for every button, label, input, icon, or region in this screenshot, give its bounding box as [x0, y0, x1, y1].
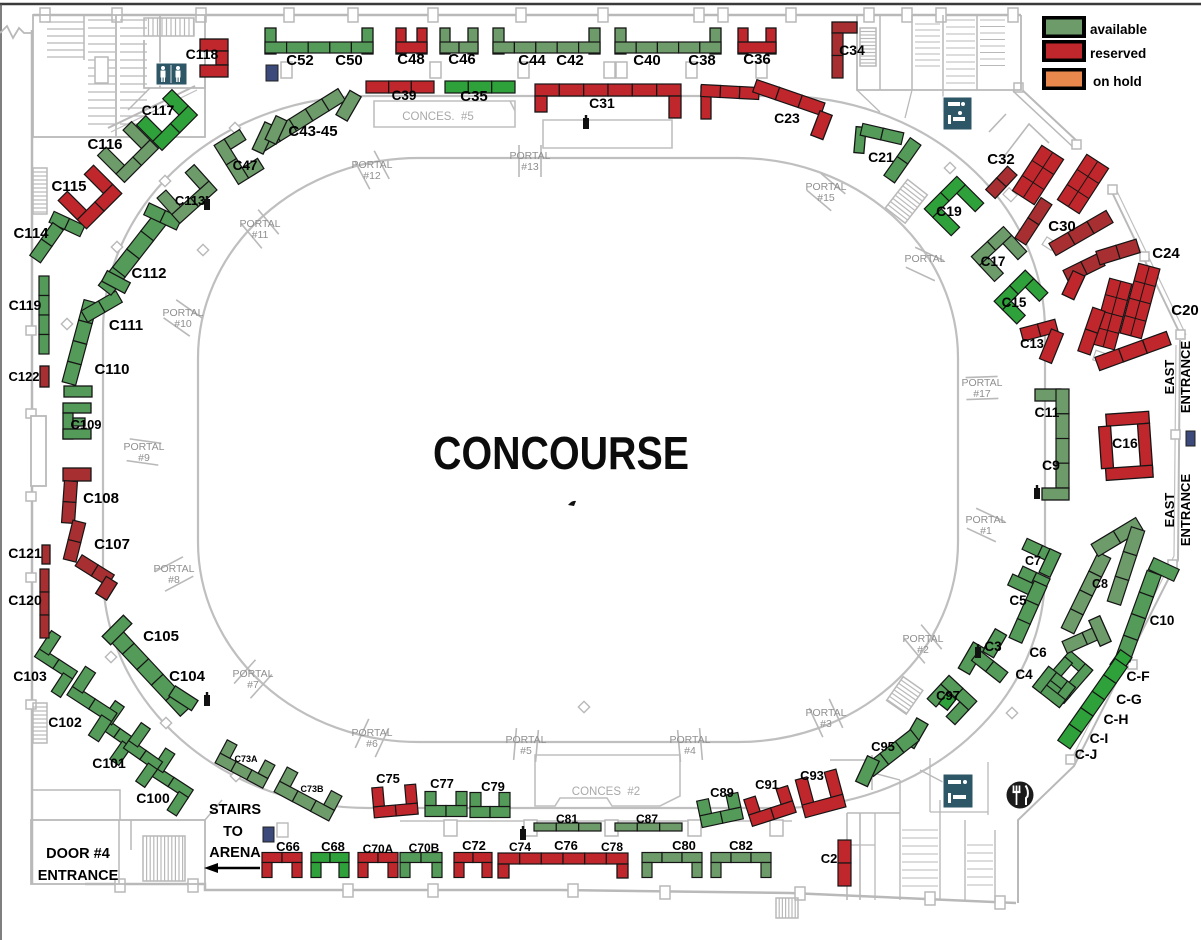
svg-text:C31: C31 [589, 95, 615, 111]
svg-text:C79: C79 [481, 779, 505, 794]
svg-text:C117: C117 [142, 102, 175, 118]
svg-text:C110: C110 [94, 361, 129, 378]
svg-text:C93: C93 [800, 768, 824, 783]
svg-text:C73A: C73A [234, 754, 258, 764]
svg-text:CONCES #2: CONCES #2 [572, 786, 640, 798]
svg-text:C121: C121 [8, 545, 42, 561]
svg-text:C103: C103 [13, 668, 47, 684]
svg-text:C104: C104 [169, 668, 206, 685]
svg-text:C10: C10 [1150, 613, 1175, 628]
svg-text:C120: C120 [8, 592, 42, 608]
svg-text:CONCES. #5: CONCES. #5 [402, 111, 474, 123]
svg-text:C73B: C73B [300, 784, 324, 794]
svg-text:C30: C30 [1048, 218, 1076, 235]
svg-text:#2: #2 [917, 644, 929, 656]
svg-text:#1: #1 [980, 525, 992, 537]
svg-text:C75: C75 [376, 771, 400, 786]
svg-text:ARENA: ARENA [209, 845, 261, 861]
svg-text:C36: C36 [743, 51, 771, 68]
svg-text:PORTAL: PORTAL [904, 253, 945, 265]
svg-text:TO: TO [223, 824, 243, 840]
svg-text:ENTRANCE: ENTRANCE [1178, 474, 1193, 547]
svg-text:C24: C24 [1152, 245, 1180, 262]
svg-text:C8: C8 [1092, 577, 1108, 591]
svg-text:C17: C17 [981, 254, 1006, 269]
svg-text:#12: #12 [363, 170, 381, 182]
svg-text:#17: #17 [973, 388, 991, 400]
svg-text:C102: C102 [48, 714, 82, 730]
svg-text:C74: C74 [509, 840, 531, 854]
svg-text:C100: C100 [136, 790, 170, 806]
svg-text:reserved: reserved [1090, 46, 1146, 61]
svg-text:C80: C80 [672, 838, 696, 853]
svg-text:ENTRANCE: ENTRANCE [38, 868, 119, 884]
svg-text:C-G: C-G [1116, 691, 1142, 707]
svg-text:C66: C66 [276, 839, 300, 854]
svg-text:C47: C47 [233, 158, 258, 173]
svg-text:C44: C44 [518, 52, 546, 69]
svg-text:C3: C3 [984, 639, 1002, 654]
svg-text:#15: #15 [817, 192, 835, 204]
svg-text:STAIRS: STAIRS [209, 802, 261, 818]
svg-text:C91: C91 [755, 777, 779, 792]
svg-text:C9: C9 [1042, 457, 1060, 473]
svg-text:C89: C89 [710, 785, 734, 800]
svg-text:C52: C52 [286, 52, 314, 69]
svg-text:C82: C82 [729, 838, 753, 853]
svg-text:#5: #5 [520, 745, 532, 757]
svg-text:C107: C107 [94, 536, 130, 553]
svg-text:C105: C105 [143, 628, 179, 645]
svg-text:C38: C38 [688, 52, 716, 69]
svg-text:C115: C115 [51, 178, 86, 195]
svg-text:#7: #7 [247, 679, 259, 691]
svg-text:C122: C122 [8, 369, 39, 384]
svg-text:C70A: C70A [363, 842, 394, 856]
svg-text:C112: C112 [131, 265, 166, 282]
svg-text:ENTRANCE: ENTRANCE [1178, 341, 1193, 414]
svg-text:C78: C78 [601, 840, 623, 854]
svg-text:C97: C97 [936, 688, 960, 703]
svg-text:#11: #11 [252, 229, 269, 241]
svg-text:#6: #6 [366, 738, 378, 750]
svg-text:C101: C101 [92, 755, 126, 771]
svg-text:C42: C42 [556, 52, 584, 69]
svg-text:C21: C21 [868, 149, 894, 165]
svg-text:#9: #9 [138, 452, 150, 464]
svg-text:C48: C48 [397, 51, 425, 68]
svg-text:C111: C111 [109, 317, 143, 334]
svg-text:C23: C23 [774, 110, 800, 126]
svg-text:C72: C72 [462, 838, 486, 853]
svg-text:C19: C19 [936, 203, 962, 219]
svg-text:C50: C50 [335, 52, 363, 69]
svg-text:#13: #13 [521, 161, 539, 173]
svg-text:C16: C16 [1112, 435, 1138, 451]
svg-text:C-H: C-H [1104, 711, 1129, 727]
svg-text:C7: C7 [1025, 554, 1041, 568]
svg-text:C5: C5 [1009, 593, 1027, 608]
svg-text:#3: #3 [820, 718, 832, 730]
svg-text:C109: C109 [70, 417, 101, 432]
svg-text:C35: C35 [460, 88, 488, 105]
svg-text:C2: C2 [821, 851, 838, 866]
svg-text:C34: C34 [839, 42, 865, 58]
svg-text:C-J: C-J [1075, 746, 1098, 762]
svg-text:C13: C13 [1020, 336, 1044, 351]
svg-text:C6: C6 [1029, 645, 1047, 660]
svg-text:C108: C108 [83, 490, 119, 507]
svg-text:C119: C119 [9, 297, 42, 313]
svg-text:C40: C40 [633, 52, 661, 69]
svg-text:C77: C77 [430, 776, 454, 791]
svg-text:C81: C81 [556, 812, 578, 826]
svg-text:C43-45: C43-45 [288, 123, 337, 140]
svg-text:#4: #4 [684, 745, 696, 757]
svg-text:C46: C46 [448, 51, 476, 68]
svg-text:CONCOURSE: CONCOURSE [433, 427, 689, 479]
svg-text:EAST: EAST [1162, 360, 1177, 395]
svg-text:C68: C68 [321, 839, 345, 854]
svg-text:C39: C39 [392, 88, 417, 103]
svg-text:C11: C11 [1035, 404, 1060, 420]
svg-text:C32: C32 [987, 151, 1015, 168]
svg-text:C-F: C-F [1126, 668, 1150, 684]
svg-text:C76: C76 [554, 838, 578, 853]
svg-text:EAST: EAST [1162, 493, 1177, 528]
svg-text:C-I: C-I [1090, 730, 1109, 746]
svg-text:C118: C118 [186, 46, 219, 62]
svg-text:C4: C4 [1015, 667, 1033, 682]
svg-text:C15: C15 [1002, 295, 1027, 310]
svg-text:C114: C114 [13, 225, 49, 242]
svg-text:C116: C116 [87, 136, 122, 153]
svg-text:C70B: C70B [409, 841, 440, 855]
svg-text:C95: C95 [871, 739, 895, 754]
svg-text:C113: C113 [175, 193, 205, 208]
svg-text:C20: C20 [1171, 302, 1199, 319]
svg-text:on hold: on hold [1093, 74, 1142, 89]
svg-text:#8: #8 [168, 574, 180, 586]
svg-text:available: available [1090, 22, 1148, 37]
svg-text:#10: #10 [174, 318, 192, 330]
svg-text:DOOR #4: DOOR #4 [46, 846, 110, 862]
svg-text:C87: C87 [636, 812, 658, 826]
